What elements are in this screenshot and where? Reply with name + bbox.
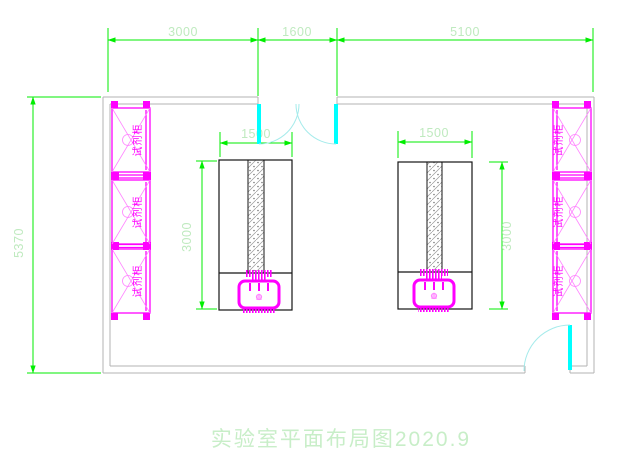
door-swing-arc [524,325,570,371]
bench-service-spine [427,162,442,272]
door-panel-left [257,104,261,144]
dim-text-bench-right-width: 1500 [419,126,449,140]
cabinet-connector [111,172,119,180]
cabinet-box: 试剂柜 [552,180,591,244]
cabinet-label: 试剂柜 [552,196,565,229]
cabinet-connector [143,101,150,108]
cabinet-label: 试剂柜 [552,124,565,157]
sink-drip-rack [420,269,448,276]
cabinet-connector [584,313,591,320]
floor-plan-drawing: 3000 1600 5100 5370 试剂柜 [0,0,619,469]
sink-base-teeth [418,307,450,312]
dim-text-bench-left-depth: 3000 [180,222,194,252]
cabinet-label: 试剂柜 [131,265,144,298]
door-swing-arc-right [296,104,336,144]
dim-text-top-right: 5100 [450,25,480,39]
door-panel-right [334,104,338,144]
drawing-title: 实验室平面布局图2020.9 [211,428,471,451]
lab-bench-right [398,162,472,312]
cabinet-label: 试剂柜 [131,124,144,157]
cad-canvas: 3000 1600 5100 5370 试剂柜 [0,0,619,469]
cabinet-box: 试剂柜 [112,180,150,244]
dim-text-bench-right-depth: 3000 [500,221,514,251]
sink-base-teeth [243,308,275,313]
dim-text-left-overall: 5370 [12,228,26,258]
cabinet-box: 试剂柜 [112,108,150,172]
dimension-left-overall: 5370 [12,97,101,373]
sink-drip-rack [245,270,273,277]
dim-text-bench-left-width: 1500 [241,127,271,141]
cabinet-connector [584,101,591,108]
cabinet-connector [552,172,560,180]
cabinet-box: 试剂柜 [552,108,591,172]
cabinet-box: 试剂柜 [112,249,150,313]
cabinet-box: 试剂柜 [552,249,591,313]
dim-text-top-left: 3000 [168,25,198,39]
cabinet-connector [552,101,559,108]
door-bottom-single [524,325,572,371]
cabinet-connector [143,313,150,320]
dim-text-top-middle: 1600 [282,25,312,39]
lab-bench-left [219,160,292,313]
cabinet-connector [111,313,118,320]
door-panel [568,325,572,370]
cabinet-connector [552,313,559,320]
cabinet-connector [143,172,151,180]
cabinet-label: 试剂柜 [131,196,144,229]
cabinet-connector [584,172,592,180]
cabinet-connector [111,101,118,108]
room-walls [103,97,594,373]
cabinet-label: 试剂柜 [552,265,565,298]
cabinet-column-left: 试剂柜 试剂柜 试剂柜 [111,101,151,320]
bench-service-spine [248,160,264,273]
dimension-top: 3000 1600 5100 [108,25,593,96]
cabinet-column-right: 试剂柜 试剂柜 试剂柜 [552,101,592,320]
